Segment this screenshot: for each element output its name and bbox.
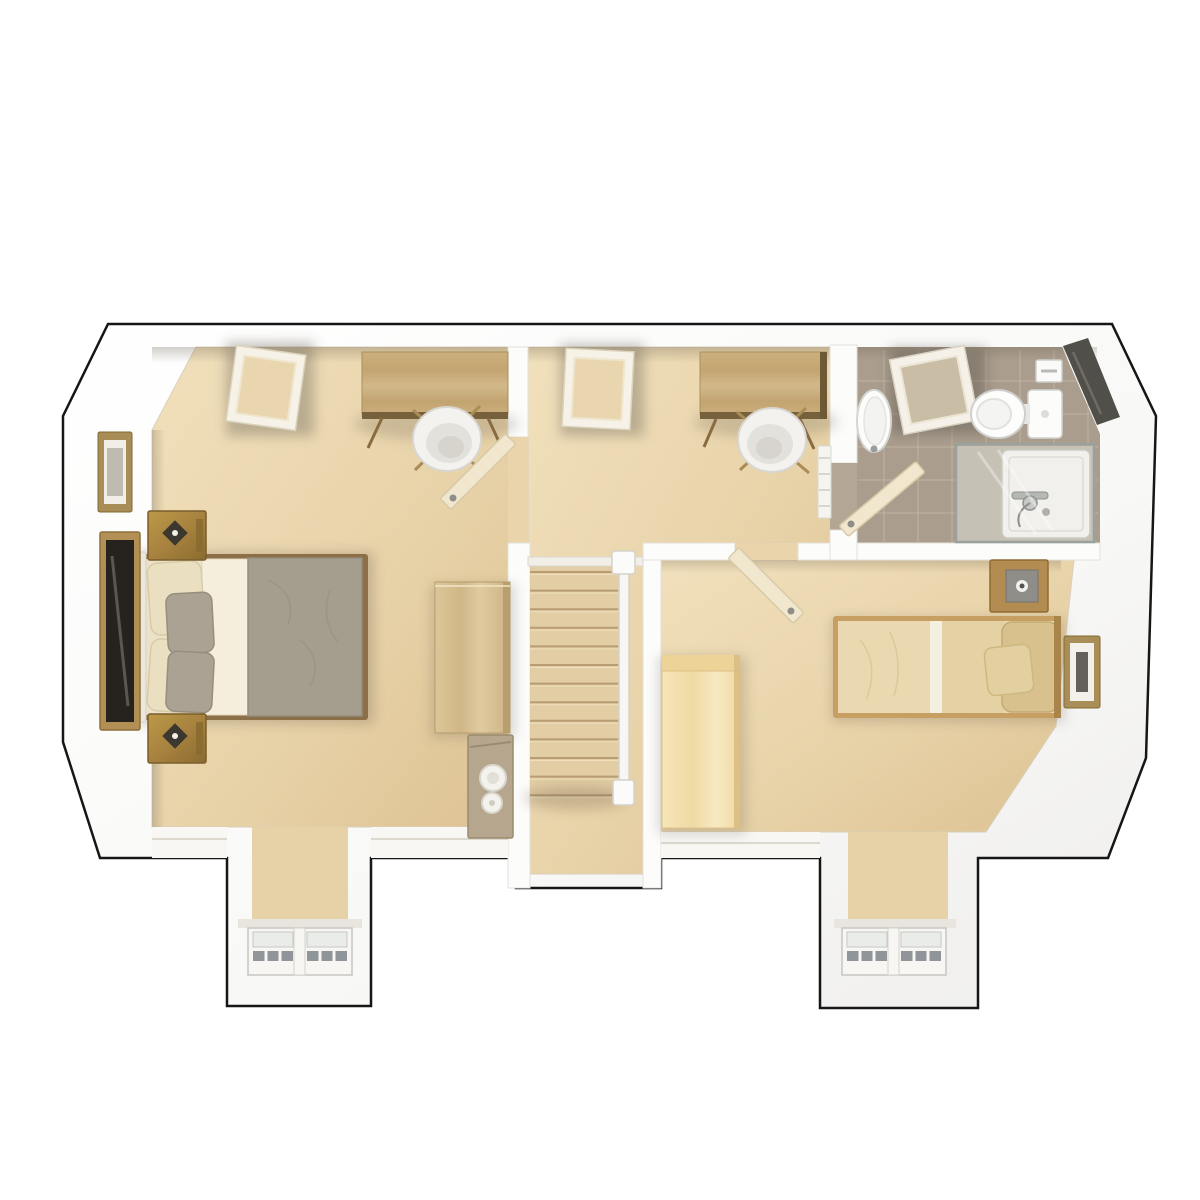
landing-wall-shelf — [818, 446, 831, 518]
landing-chair-cushion — [756, 437, 782, 459]
right-dormer-pane-strip-left — [847, 951, 887, 961]
stair-newel-top — [612, 551, 635, 574]
master-wall-art-image — [107, 448, 123, 496]
left-dormer-recess-carpet — [252, 827, 348, 924]
toilet-flush-button — [1041, 410, 1049, 418]
bedroom2-wardrobe-top — [662, 655, 740, 673]
master-lamp-top-bulb — [172, 530, 178, 536]
left-dormer-glass-left — [253, 932, 293, 947]
bedroom2-wall-art-image — [1076, 652, 1088, 692]
wall-bathroom-left-upper — [830, 345, 857, 463]
master-door-handle — [450, 495, 457, 502]
bathroom-door-handle — [848, 521, 855, 528]
left-dormer-glass-right — [307, 932, 347, 947]
cabinet-bowl-small-inner — [489, 800, 495, 806]
master-dresser-edge — [503, 582, 510, 733]
bathroom-sink-tap — [871, 446, 878, 453]
wall-bedroom2-top-left — [643, 543, 735, 560]
floor-plan-canvas — [0, 0, 1200, 1200]
master-dresser — [435, 582, 510, 733]
master-lamp-bottom-bulb — [172, 733, 178, 739]
right-dormer-pane-strip-right — [901, 951, 941, 961]
right-dormer-sill — [834, 919, 956, 928]
left-dormer-pane-strip-left — [253, 951, 293, 961]
landing-desk-edge-right — [820, 352, 827, 419]
wall-bedroom2-top-right — [798, 543, 832, 560]
master-pillow-taupe-top — [165, 592, 214, 654]
wall-bathroom-left-lower — [830, 530, 857, 560]
bedroom2-lamp-center — [1020, 584, 1025, 589]
toilet-bowl-inner — [977, 399, 1011, 429]
stair-handrail — [619, 562, 629, 796]
bedroom2-wardrobe-edge — [734, 655, 740, 828]
left-dormer-pane-strip-right — [307, 951, 347, 961]
cabinet-bowl-large-inner — [487, 772, 499, 784]
bathroom-skylight-glass — [900, 356, 968, 424]
master-bed-duvet — [248, 558, 362, 716]
landing-desk-top — [700, 352, 826, 414]
left-dormer-sill — [238, 919, 362, 928]
bedroom2-door-handle — [788, 608, 795, 615]
master-skylight-glass — [236, 356, 296, 421]
right-dormer-recess-carpet — [848, 832, 948, 924]
master-nightstand-bottom-drawer — [196, 722, 203, 755]
bathroom-sink-basin — [864, 397, 886, 445]
floor-plan — [0, 0, 1200, 1200]
single-pillow-small — [984, 644, 1035, 697]
right-dormer-mullion — [888, 928, 899, 975]
bedroom2-wardrobe — [662, 671, 740, 828]
right-dormer-glass-right — [901, 932, 941, 947]
master-desk-top — [362, 352, 508, 414]
master-bottom-wall-left — [152, 827, 227, 858]
left-dormer-mullion — [294, 928, 305, 975]
bedroom2-bottom-wall — [661, 832, 820, 858]
wall-bathroom-bottom — [857, 543, 1100, 560]
master-pillow-taupe-bottom — [165, 651, 214, 713]
single-bed-head-edge — [1054, 616, 1061, 718]
single-bed-sheet-fold — [930, 621, 942, 713]
landing-skylight-glass — [571, 358, 624, 421]
master-doorway-threshold — [508, 437, 528, 543]
master-nightstand-top-drawer — [196, 519, 203, 552]
right-dormer-glass-left — [847, 932, 887, 947]
stair-newel-bottom — [613, 780, 634, 805]
master-chair-cushion — [438, 436, 464, 458]
